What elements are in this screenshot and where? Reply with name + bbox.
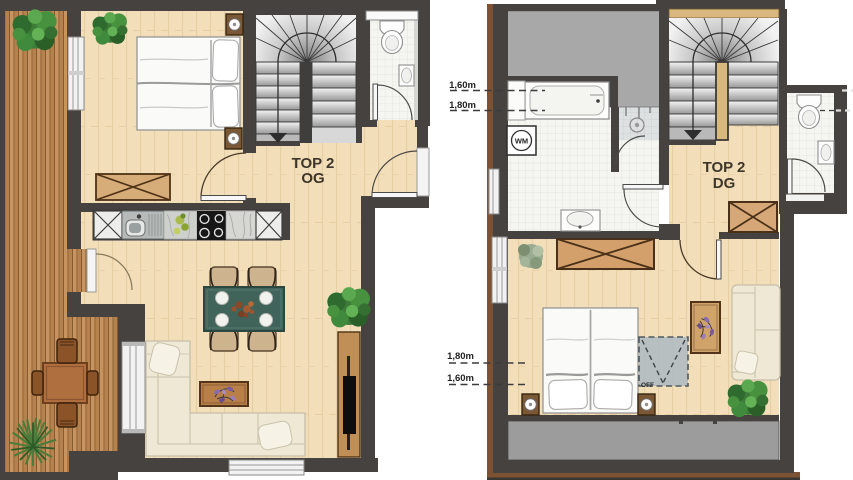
svg-text:TOP 2: TOP 2 (703, 159, 746, 176)
svg-text:1,60m: 1,60m (447, 373, 474, 384)
svg-text:OG: OG (301, 170, 324, 187)
svg-text:OFF: OFF (641, 382, 654, 389)
svg-text:1,60m: 1,60m (449, 80, 476, 91)
svg-text:DG: DG (713, 175, 736, 192)
svg-text:1,80m: 1,80m (447, 351, 474, 362)
svg-text:WM: WM (515, 137, 528, 146)
svg-text:1,80m: 1,80m (449, 100, 476, 111)
